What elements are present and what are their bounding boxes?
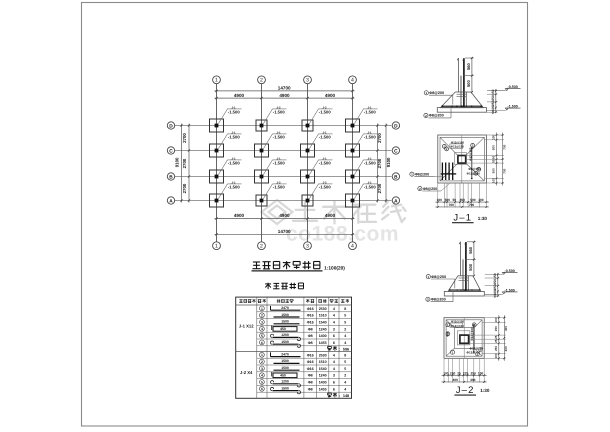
svg-text:100: 100 [493,289,497,295]
svg-text:C: C [394,148,398,154]
svg-text:100: 100 [492,135,496,140]
svg-text:250: 250 [491,95,495,101]
svg-text:6: 6 [333,387,335,391]
svg-text:-1.500: -1.500 [319,135,332,140]
svg-text:-1.500: -1.500 [319,185,332,190]
svg-text:100: 100 [494,353,498,358]
svg-text:1510: 1510 [319,314,327,318]
svg-text:3: 3 [261,367,263,371]
svg-text:50: 50 [492,155,496,159]
svg-text:4: 4 [333,307,335,311]
svg-text:Φ16: Φ16 [307,307,314,311]
svg-text:2: 2 [344,374,346,378]
svg-text:50: 50 [493,294,497,298]
svg-text:Φ16: Φ16 [307,353,314,357]
svg-text:50: 50 [491,110,495,114]
svg-text:A: A [169,198,173,204]
svg-text:100: 100 [437,198,443,202]
svg-text:3: 3 [306,244,309,250]
svg-text:-1.500: -1.500 [364,185,377,190]
svg-text:1240: 1240 [319,327,327,331]
svg-text:500: 500 [468,263,473,270]
svg-text:D: D [169,123,173,129]
svg-text:B: B [394,174,398,180]
svg-text:2530: 2530 [319,353,327,357]
svg-text:Φ16: Φ16 [307,321,314,325]
svg-text:Φ16: Φ16 [307,360,314,364]
svg-text:6: 6 [333,381,335,385]
svg-text:Φ8: Φ8 [308,374,313,378]
svg-text:4: 4 [344,341,346,345]
svg-text:1200: 1200 [281,380,289,384]
svg-text:4: 4 [344,334,346,338]
svg-text:700: 700 [469,203,475,207]
svg-text:2470: 2470 [281,352,289,356]
svg-text:150: 150 [493,273,497,279]
svg-text:2: 2 [260,244,263,250]
svg-text:400: 400 [504,326,508,331]
svg-text:Φ8@200: Φ8@200 [415,173,429,177]
svg-text:-1.500: -1.500 [273,185,286,190]
svg-text:2: 2 [261,314,263,318]
svg-text:-0.500: -0.500 [505,269,515,273]
svg-text:Φ8: Φ8 [308,381,313,385]
svg-text:1400: 1400 [319,334,327,338]
svg-text:8: 8 [344,353,346,357]
svg-text:1: 1 [215,78,218,84]
svg-text:2700: 2700 [182,158,187,168]
svg-text:2700: 2700 [182,183,187,193]
svg-text:4: 4 [333,353,335,357]
svg-text:560: 560 [466,62,471,69]
svg-text:1400: 1400 [319,381,327,385]
svg-text:4: 4 [333,367,335,371]
svg-text:Φ16: Φ16 [446,331,450,337]
svg-text:450: 450 [280,327,286,331]
svg-text:Φ8@200: Φ8@200 [429,91,444,95]
svg-text:1455: 1455 [319,341,327,345]
svg-text:250: 250 [450,371,456,375]
svg-text:J-2 X4: J-2 X4 [240,370,253,375]
svg-text:5: 5 [344,360,346,364]
svg-text:250: 250 [491,100,495,106]
svg-text:4: 4 [261,327,263,331]
svg-text:1500: 1500 [281,320,289,324]
svg-text:C: C [169,148,173,154]
svg-text:1200: 1200 [281,333,289,337]
svg-text:25: 25 [494,339,498,343]
svg-text:J–2: J–2 [456,385,475,396]
svg-text:J–1: J–1 [453,212,472,223]
svg-text:100: 100 [492,178,496,183]
svg-text:2700: 2700 [377,133,382,143]
svg-text:9100: 9100 [174,157,179,167]
svg-text:1:100(20): 1:100(20) [324,266,345,272]
svg-text:-1.500: -1.500 [273,135,286,140]
svg-text:25: 25 [494,335,498,339]
svg-text:4900: 4900 [279,213,290,218]
svg-text:400: 400 [470,378,476,382]
svg-text:-1.500: -1.500 [364,110,377,115]
svg-text:4900: 4900 [234,213,245,218]
svg-text:1500: 1500 [281,359,289,363]
svg-text:596: 596 [343,347,349,351]
svg-text:14700: 14700 [278,229,291,234]
svg-text:700: 700 [502,144,506,149]
svg-text:1:30: 1:30 [480,388,490,393]
svg-text:5: 5 [344,321,346,325]
svg-text:50: 50 [453,198,457,202]
svg-text:500: 500 [466,79,471,86]
svg-text:4: 4 [261,374,263,378]
svg-text:700: 700 [502,168,506,173]
svg-text:Φ8: Φ8 [308,327,313,331]
svg-text:Φ12@150: Φ12@150 [451,145,465,149]
svg-text:D: D [394,123,398,129]
svg-text:500: 500 [470,198,476,202]
svg-text:Φ8@200: Φ8@200 [431,275,446,279]
svg-text:150: 150 [491,89,495,95]
svg-text:4: 4 [333,360,335,364]
svg-text:Φ8: Φ8 [308,334,313,338]
svg-text:1540: 1540 [319,321,327,325]
svg-text:250: 250 [471,371,477,375]
svg-text:450: 450 [460,198,466,202]
svg-text:-1.500: -1.500 [319,110,332,115]
svg-text:-1.500: -1.500 [228,135,241,140]
svg-text:100: 100 [494,317,498,322]
svg-text:-1.500: -1.500 [508,105,518,109]
svg-text:3: 3 [333,374,335,378]
svg-text:1240: 1240 [319,374,327,378]
svg-text:Φ8: Φ8 [308,387,313,391]
svg-text:-1.500: -1.500 [319,161,332,166]
svg-text:4: 4 [344,381,346,385]
svg-text:-1.500: -1.500 [228,110,241,115]
svg-text:Φ12@150: Φ12@150 [468,147,472,161]
svg-text:50: 50 [492,159,496,163]
svg-text:100: 100 [491,105,495,111]
svg-text:1: 1 [261,353,263,357]
svg-text:Φ16: Φ16 [307,314,314,318]
svg-text:6: 6 [333,334,335,338]
svg-text:6: 6 [261,387,263,391]
svg-text:5: 5 [261,380,263,384]
svg-text:-1.500: -1.500 [505,288,515,292]
svg-text:4: 4 [333,321,335,325]
svg-text:100: 100 [443,371,449,375]
svg-text:250: 250 [494,326,498,331]
svg-text:560: 560 [468,246,473,253]
svg-text:Φ12@150: Φ12@150 [451,324,465,328]
svg-text:A: A [394,198,398,204]
svg-text:4: 4 [351,78,354,84]
svg-text:4: 4 [351,244,354,250]
svg-text:250: 250 [493,284,497,290]
svg-text:2700: 2700 [377,183,382,193]
svg-text:Φ12@150: Φ12@150 [470,327,474,341]
svg-text:2: 2 [260,78,263,84]
svg-text:14700: 14700 [278,86,291,91]
svg-text:-1.500: -1.500 [364,161,377,166]
svg-text:Φ8@200: Φ8@200 [431,298,446,302]
svg-text:1500: 1500 [281,386,289,390]
svg-text:6: 6 [261,341,263,345]
svg-text:4900: 4900 [279,93,290,98]
svg-text:400: 400 [453,378,459,382]
svg-text:500: 500 [445,198,451,202]
svg-text:500: 500 [492,145,496,150]
svg-text:400: 400 [504,346,508,351]
svg-text:J-1 X12: J-1 X12 [239,323,254,328]
svg-text:-1.500: -1.500 [273,110,286,115]
svg-text:1: 1 [215,244,218,250]
svg-text:Φ12@150: Φ12@150 [467,172,481,176]
svg-text:1510: 1510 [319,360,327,364]
svg-text:Φ16: Φ16 [307,367,314,371]
svg-text:6: 6 [333,341,335,345]
svg-text:1: 1 [261,307,263,311]
svg-text:500: 500 [492,168,496,173]
svg-text:Φ8: Φ8 [308,341,313,345]
svg-text:225: 225 [463,371,469,375]
svg-text:8: 8 [344,307,346,311]
svg-text:1500: 1500 [281,340,289,344]
svg-text:4900: 4900 [325,93,336,98]
svg-text:1500: 1500 [281,313,289,317]
svg-text:3: 3 [306,78,309,84]
svg-text:-1.500: -1.500 [228,185,241,190]
svg-text:Φ8@200: Φ8@200 [429,114,444,118]
svg-text:1540: 1540 [319,367,327,371]
svg-text:250: 250 [493,279,497,285]
svg-text:B: B [169,174,173,180]
svg-text:100: 100 [478,198,484,202]
svg-text:1500: 1500 [281,366,289,370]
svg-text:25: 25 [457,371,461,375]
svg-text:4: 4 [333,314,335,318]
svg-text:5: 5 [344,314,346,318]
svg-text:Φ8@200: Φ8@200 [423,187,437,191]
svg-text:-0.500: -0.500 [508,85,518,89]
svg-text:2530: 2530 [319,307,327,311]
svg-text:5: 5 [261,334,263,338]
svg-text:4: 4 [344,387,346,391]
svg-text:100: 100 [478,371,484,375]
svg-text:700: 700 [449,203,455,207]
svg-text:4900: 4900 [234,93,245,98]
svg-text:4900: 4900 [325,213,336,218]
svg-text:450: 450 [280,373,286,377]
svg-text:148: 148 [343,394,349,398]
svg-text:5: 5 [344,367,346,371]
svg-text:1:30: 1:30 [478,216,488,221]
svg-text::: : [339,393,340,398]
svg-text:2470: 2470 [281,306,289,310]
svg-text:3: 3 [333,327,335,331]
svg-text:9100: 9100 [386,157,391,167]
svg-text:2: 2 [344,327,346,331]
svg-text:250: 250 [494,346,498,351]
svg-text::: : [339,346,340,351]
svg-text:-1.500: -1.500 [364,135,377,140]
svg-text:2700: 2700 [182,133,187,143]
svg-text:3: 3 [261,320,263,324]
svg-text:1455: 1455 [319,387,327,391]
svg-text:2: 2 [261,360,263,364]
svg-text:-1.500: -1.500 [273,161,286,166]
svg-text:2700: 2700 [377,158,382,168]
svg-text:-1.500: -1.500 [228,161,241,166]
